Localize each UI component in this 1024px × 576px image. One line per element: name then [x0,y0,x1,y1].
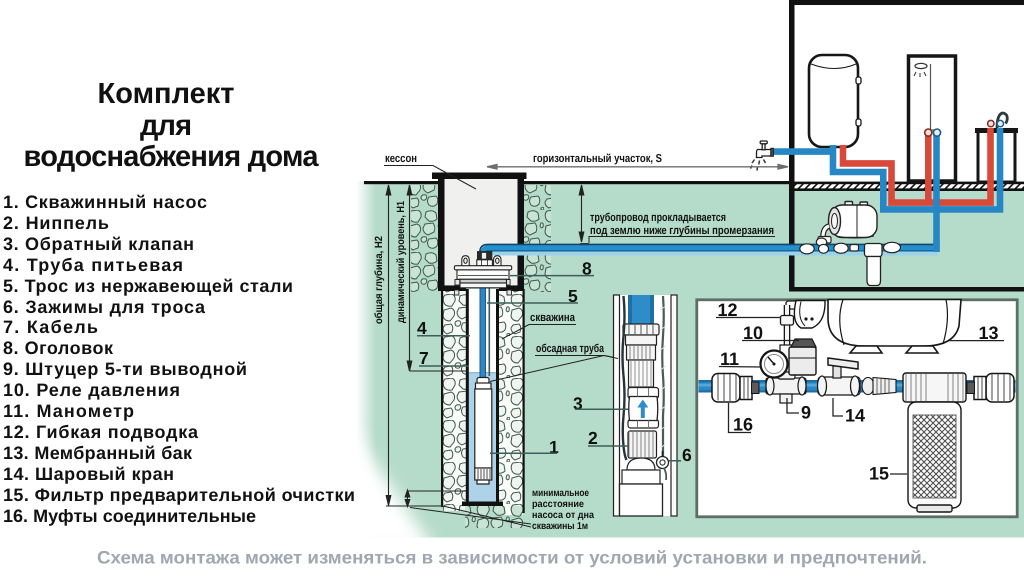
svg-text:16. Муфты соединительные: 16. Муфты соединительные [3,506,256,526]
svg-text:9: 9 [801,403,811,423]
svg-text:13. Мембранный бак: 13. Мембранный бак [3,443,193,463]
svg-text:14: 14 [845,406,865,426]
svg-text:10. Реле давления: 10. Реле давления [3,380,180,400]
svg-text:3: 3 [573,394,583,414]
svg-text:расстояние: расстояние [532,499,584,510]
svg-text:водоснабжения дома: водоснабжения дома [24,141,320,173]
svg-text:5. Трос из нержавеющей стали: 5. Трос из нержавеющей стали [3,276,293,296]
svg-text:12. Гибкая подводка: 12. Гибкая подводка [3,422,199,442]
svg-text:6. Зажимы для троса: 6. Зажимы для троса [3,297,206,317]
svg-text:16: 16 [733,415,753,435]
svg-text:обсадная труба: обсадная труба [536,343,604,355]
svg-text:минимальное: минимальное [532,488,589,499]
svg-text:7. Кабель: 7. Кабель [3,317,98,337]
svg-text:скважины 1м: скважины 1м [532,521,588,532]
svg-text:Комплект: Комплект [98,78,235,110]
svg-text:3. Обратный клапан: 3. Обратный клапан [3,234,194,254]
svg-text:11. Манометр: 11. Манометр [3,401,134,421]
svg-text:14. Шаровый кран: 14. Шаровый кран [3,464,174,484]
svg-text:для: для [140,110,192,142]
svg-text:2: 2 [588,428,598,448]
svg-text:1. Скважинный насос: 1. Скважинный насос [3,192,207,212]
svg-text:динамический уровень, Н1: динамический уровень, Н1 [395,201,407,323]
svg-text:кессон: кессон [385,153,417,165]
svg-text:4. Труба питьевая: 4. Труба питьевая [3,255,183,275]
svg-text:6: 6 [682,445,692,465]
svg-text:горизонтальный участок, S: горизонтальный участок, S [533,153,662,165]
svg-text:8. Оголовок: 8. Оголовок [3,338,114,358]
svg-text:насоса от дна: насоса от дна [532,510,594,521]
svg-text:15: 15 [869,464,889,484]
svg-text:трубопровод прокладывается: трубопровод прокладывается [590,212,726,224]
svg-text:7: 7 [419,348,429,368]
svg-text:Схема монтажа может изменяться: Схема монтажа может изменяться в зависим… [97,548,927,568]
svg-text:под землю ниже глубины про: под землю ниже глубины промерзания [590,225,774,237]
svg-text:9. Штуцер 5-ти выводной: 9. Штуцер 5-ти выводной [3,359,247,379]
svg-text:2. Ниппель: 2. Ниппель [3,213,109,233]
svg-text:15. Фильтр предварительной очи: 15. Фильтр предварительной очистки [3,485,355,505]
svg-text:скважина: скважина [530,312,576,324]
svg-text:общая глубина, Н2: общая глубина, Н2 [373,236,385,324]
svg-text:4: 4 [417,318,427,338]
